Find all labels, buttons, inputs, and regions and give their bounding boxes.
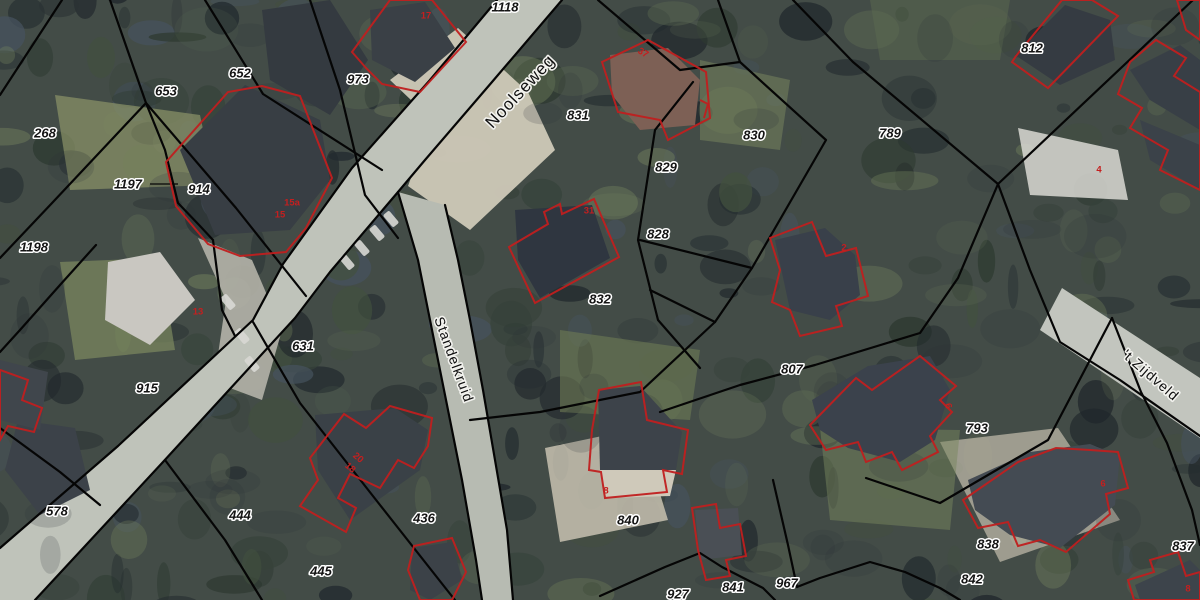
parcel-label: 789 xyxy=(879,125,901,140)
map-viewport[interactable]: 2686536529731118831830789812119791411988… xyxy=(0,0,1200,600)
house-number-label: 8 xyxy=(1185,584,1190,595)
parcel-label: 652 xyxy=(229,65,251,80)
parcel-label: 842 xyxy=(961,571,983,586)
parcel-label: 831 xyxy=(567,107,589,122)
house-number-label: 15a xyxy=(284,198,301,209)
parcel-label: 838 xyxy=(977,536,999,551)
parcel-label: 436 xyxy=(412,510,435,525)
parcel-label: 967 xyxy=(776,575,798,590)
house-number-label: 13 xyxy=(193,307,204,318)
parcel-label: 445 xyxy=(309,563,332,578)
parcel-label: 837 xyxy=(1172,538,1194,553)
parcel-label: 832 xyxy=(589,291,611,306)
house-number-label: 2 xyxy=(841,243,846,254)
parcel-label: 914 xyxy=(188,181,210,196)
parcel-label: 653 xyxy=(155,83,177,98)
parcel-label: 578 xyxy=(46,503,68,518)
parcel-label: 829 xyxy=(655,159,677,174)
house-number-label: 6 xyxy=(1100,479,1105,490)
house-number-label: 8 xyxy=(603,486,608,497)
house-number-label: 17 xyxy=(421,11,432,22)
parcel-label: 631 xyxy=(292,338,314,353)
parcel-label: 973 xyxy=(347,71,369,86)
parcel-label: 444 xyxy=(228,507,251,522)
house-number-label: 4 xyxy=(1096,165,1102,176)
house-number-label: 15 xyxy=(275,210,286,221)
parcel-label: 840 xyxy=(617,512,639,527)
parcel-label: 841 xyxy=(722,579,744,594)
parcel-label: 793 xyxy=(966,420,988,435)
parcel-label: 828 xyxy=(647,226,669,241)
parcel-label: 812 xyxy=(1021,40,1043,55)
parcel-label: 807 xyxy=(781,361,803,376)
parcel-label: 1198 xyxy=(20,239,49,254)
parcel-label: 268 xyxy=(33,125,56,140)
parcel-label: 830 xyxy=(743,127,765,142)
parcel-label: 1118 xyxy=(492,0,520,14)
parcel-label: 927 xyxy=(667,586,689,600)
parcel-label: 915 xyxy=(136,380,158,395)
house-number-label: 31 xyxy=(584,206,595,217)
parcel-label: 1197 xyxy=(114,176,143,191)
map-canvas[interactable]: 2686536529731118831830789812119791411988… xyxy=(0,0,1200,600)
